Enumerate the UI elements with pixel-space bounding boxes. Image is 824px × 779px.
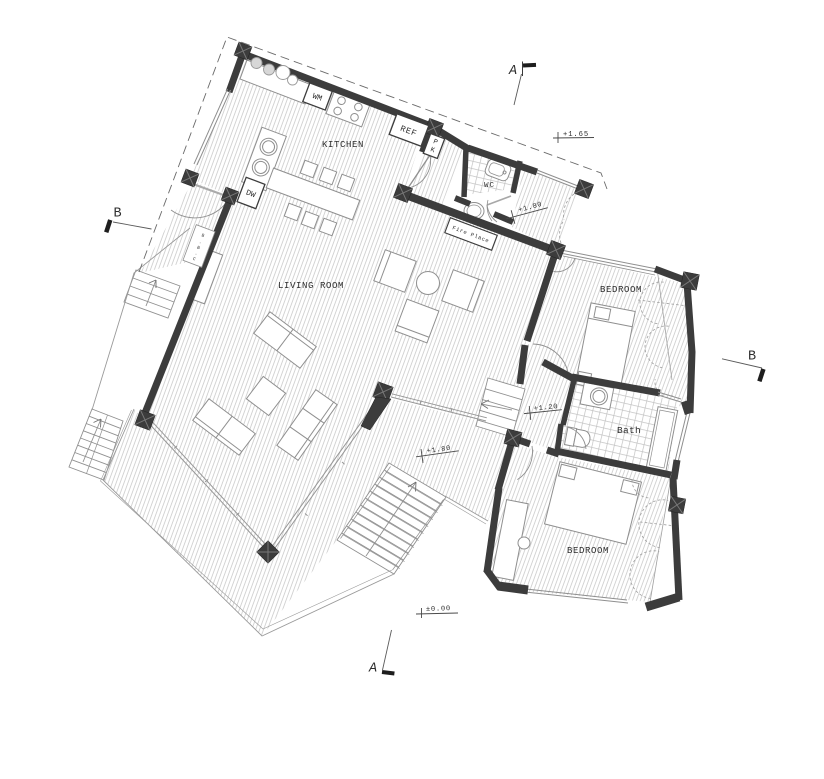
svg-text:+1.65: +1.65 <box>563 131 589 139</box>
svg-text:B: B <box>748 350 756 365</box>
svg-text:B: B <box>114 207 122 222</box>
svg-text:±0.00: ±0.00 <box>426 605 451 614</box>
svg-text:A: A <box>368 662 377 677</box>
svg-text:KITCHEN: KITCHEN <box>322 140 364 150</box>
svg-text:A: A <box>508 64 517 79</box>
svg-text:Bath: Bath <box>617 425 641 436</box>
svg-text:WC: WC <box>484 182 495 190</box>
svg-text:BEDROOM: BEDROOM <box>567 546 609 556</box>
svg-text:LIVING ROOM: LIVING ROOM <box>278 281 344 291</box>
svg-text:BEDROOM: BEDROOM <box>600 285 642 295</box>
